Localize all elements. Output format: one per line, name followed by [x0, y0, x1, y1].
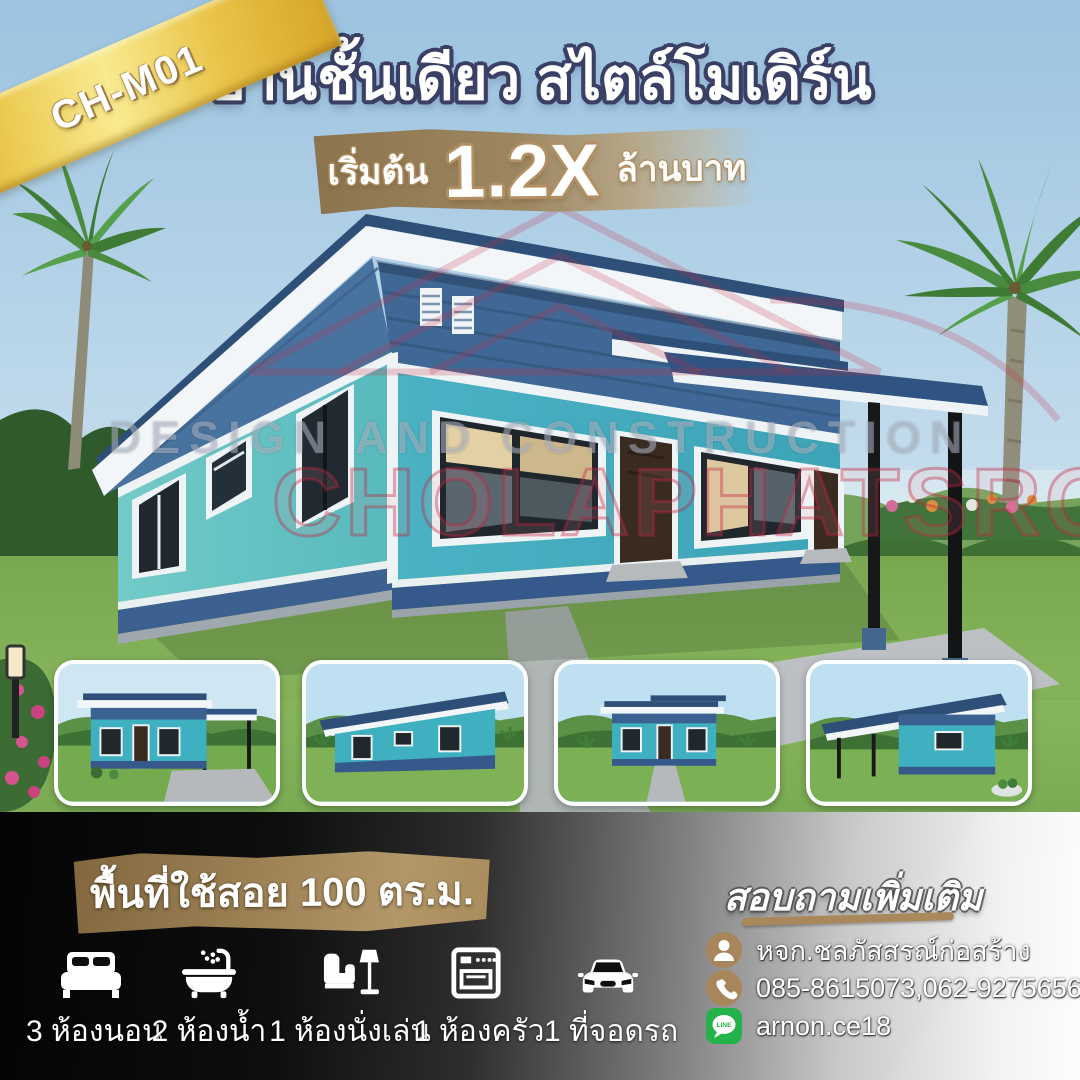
thumbnail-view-3 [554, 660, 780, 806]
company-name: หจก.ชลภัสสรณ์ก่อสร้าง [756, 929, 1031, 972]
feature-label: 2 ห้องน้ำ [146, 1008, 272, 1055]
line-id: arnon.ce18 [756, 1011, 891, 1042]
feature-label: 3 ห้องนอน [26, 1008, 156, 1055]
area-banner: พื้นที่ใช้สอย 100 ตร.ม. [74, 850, 491, 934]
feature-parking: 1 ที่จอดรถ [544, 944, 672, 1055]
feature-label: 1 ห้องนั่งเล่น [268, 1008, 432, 1055]
line-icon: LINE [706, 1008, 742, 1044]
contact-list: หจก.ชลภัสสรณ์ก่อสร้าง 085-8615073,062-92… [706, 932, 1080, 1046]
price-value: 1.2X [444, 127, 601, 214]
price-prefix: เริ่มต้น [327, 144, 428, 200]
price-badge: เริ่มต้น 1.2X ล้านบาท [314, 126, 761, 215]
contact-row-phone: 085-8615073,062-9275656 [706, 970, 1080, 1006]
feature-living-room: 1 ห้องนั่งเล่น [268, 944, 432, 1055]
thumbnail-view-4 [806, 660, 1032, 806]
phone-icon [706, 970, 742, 1006]
bed-icon [26, 944, 156, 1000]
garden-lamp-post [12, 676, 19, 738]
sofa-lamp-icon [268, 944, 432, 1000]
info-section: พื้นที่ใช้สอย 100 ตร.ม. สอบถามเพิ่มเติม … [0, 812, 1080, 1080]
person-icon [706, 932, 742, 968]
price-suffix: ล้านบาท [616, 140, 747, 196]
feature-label: 1 ที่จอดรถ [544, 1008, 672, 1055]
flyer-canvas: CH-M01 บ้านชั้นเดียว สไตล์โมเดิร์น เริ่ม… [0, 0, 1080, 1080]
svg-text:LINE: LINE [717, 1022, 732, 1029]
feature-bathrooms: 2 ห้องน้ำ [146, 944, 272, 1055]
thumbnail-view-2 [302, 660, 528, 806]
car-icon [544, 944, 672, 1000]
carport-post-front [948, 412, 962, 660]
contact-row-line: LINE arnon.ce18 [706, 1008, 1080, 1044]
contact-row-company: หจก.ชลภัสสรณ์ก่อสร้าง [706, 932, 1080, 968]
area-text: พื้นที่ใช้สอย 100 ตร.ม. [90, 858, 474, 925]
garden-lamp [7, 646, 24, 678]
phone-numbers: 085-8615073,062-9275656 [756, 973, 1080, 1004]
feature-label: 1 ห้องครัว [414, 1008, 538, 1055]
bathtub-icon [146, 944, 272, 1000]
feature-kitchen: 1 ห้องครัว [414, 944, 538, 1055]
thumbnail-view-1 [54, 660, 280, 806]
stove-icon [414, 944, 538, 1000]
feature-bedrooms: 3 ห้องนอน [26, 944, 156, 1055]
carport-post-rear [868, 402, 880, 630]
